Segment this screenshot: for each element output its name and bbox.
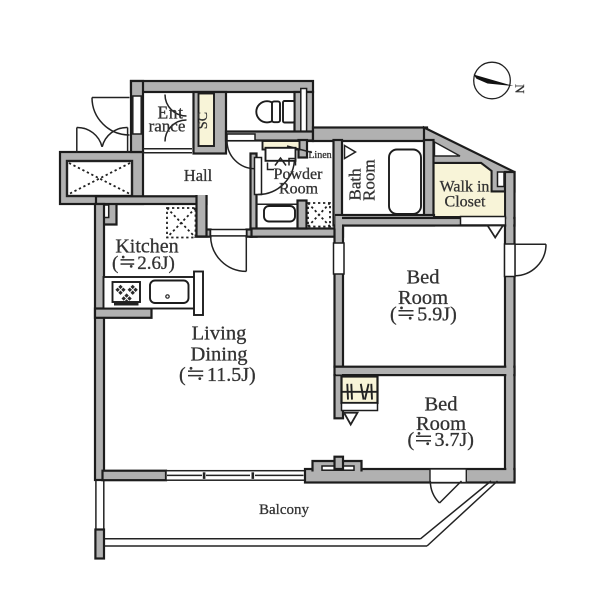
svg-text:Linen: Linen [308, 150, 331, 161]
svg-text:Room: Room [279, 181, 319, 198]
svg-text:2.6J): 2.6J) [137, 253, 174, 274]
svg-text:(: ( [390, 304, 397, 326]
svg-text:Closet: Closet [445, 194, 486, 211]
svg-text:(: ( [112, 253, 118, 274]
svg-text:Hall: Hall [184, 166, 213, 185]
svg-text:Living: Living [192, 323, 247, 345]
svg-text:Dining: Dining [191, 344, 248, 366]
svg-text:Bed: Bed [406, 267, 439, 289]
svg-text:N: N [512, 84, 527, 94]
svg-text:3.7J): 3.7J) [435, 429, 474, 451]
svg-text:Room: Room [360, 159, 379, 201]
svg-text:(: ( [408, 429, 415, 451]
svg-text:5.9J): 5.9J) [417, 304, 456, 326]
svg-text:(: ( [179, 364, 186, 386]
svg-text:rance: rance [149, 117, 186, 136]
svg-text:SC: SC [196, 112, 211, 129]
svg-text:Balcony: Balcony [259, 502, 309, 518]
svg-text:11.5J): 11.5J) [207, 364, 256, 386]
